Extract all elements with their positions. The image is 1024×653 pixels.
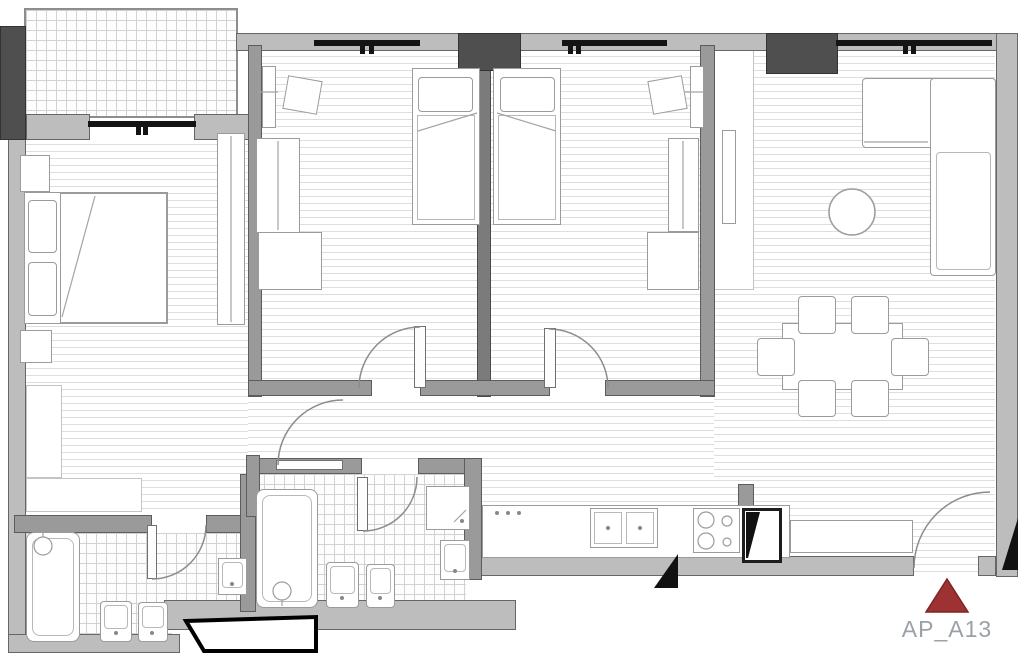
bottom-wall-kitchen [480,556,914,576]
dining-chair [798,296,836,334]
hall-wall-a [248,380,372,396]
single-bed-duvet [417,115,475,220]
column-mid [458,33,521,71]
window-tick [360,44,365,54]
bath1-top-wall-a [14,515,152,533]
bidet-1-inner [142,606,164,628]
bathtub-1-inner [32,538,74,636]
door-leaf-bedroom2 [414,326,426,388]
dining-chair [891,338,929,376]
entry-console [790,520,913,553]
bottom-wall-entry-stub [978,556,996,576]
sofa-chaise-pad [936,152,991,270]
balcony-sill-left [26,114,90,140]
door-leaf-bedroom3 [544,328,556,388]
door-leaf-bathroom2 [357,477,368,531]
window-tick [911,44,916,54]
window-tick [568,44,573,54]
column-right [766,33,838,74]
dining-chair [757,338,795,376]
right-wall [996,33,1018,577]
window-tick [143,125,148,135]
window-tick [136,125,141,135]
window-tick [576,44,581,54]
dining-chair [798,380,836,417]
cooktop [693,508,740,553]
wardrobe-bedroom2-b [258,232,322,290]
desk-chair [282,75,322,115]
single-bed-duvet [498,115,556,220]
desk-bedroom2 [262,66,276,128]
pillow [28,262,57,316]
closet-lower [26,478,142,512]
hall-wall-b [420,380,550,396]
wardrobe-bedroom1 [217,133,245,325]
desk-chair [647,75,687,115]
hall-wall-c [605,380,715,396]
nightstand [20,155,50,192]
pillow [500,77,555,112]
sink-basin [594,512,622,544]
tv-unit [722,130,736,224]
desk-bedroom3 [690,66,704,128]
hallway-floor [248,396,714,462]
wardrobe-bedroom3-a [668,138,699,232]
entrance-marker-triangle [926,579,968,612]
dining-chair [851,296,889,334]
washbasin-1-inner [222,562,243,588]
window-tick [903,44,908,54]
nightstand [20,330,52,363]
door-leaf-vestibule [276,460,343,470]
wardrobe-bedroom2-a [256,138,300,233]
floor-plan: AP_A13 [0,0,1024,653]
double-bed-duvet [60,193,167,323]
wardrobe-bedroom3-b [647,232,699,290]
column-left [0,26,26,140]
door-leaf-bathroom1 [147,525,157,579]
fridge [742,508,782,563]
closet-upper [26,385,62,478]
balcony-door-bar [88,121,196,127]
pillow [418,77,473,112]
washing-machine [426,486,470,530]
bidet-2-inner [370,568,391,594]
toilet-1-inner [104,605,128,629]
balcony-floor [24,8,238,118]
bathtub-2-inner [262,495,312,602]
sink-basin [626,512,654,544]
washbasin-2-inner [444,544,466,572]
apartment-label: AP_A13 [902,616,992,643]
pillow [28,200,57,253]
window-tick [369,44,374,54]
window-1 [314,40,420,46]
dining-chair [851,380,889,417]
toilet-2-inner [330,566,355,594]
